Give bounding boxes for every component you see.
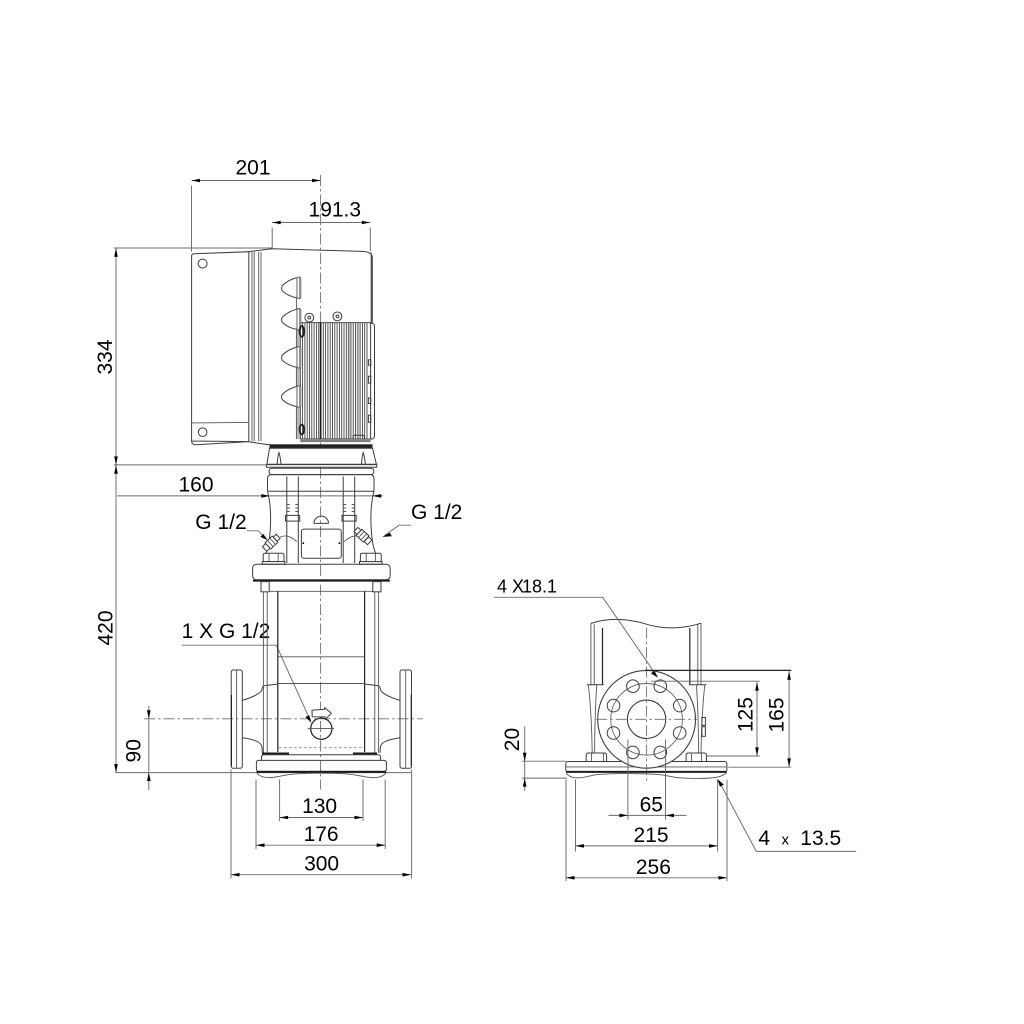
svg-text:334: 334: [94, 339, 117, 374]
svg-text:x: x: [782, 832, 790, 849]
svg-text:1 X G 1/2: 1 X G 1/2: [182, 620, 271, 643]
svg-text:300: 300: [304, 853, 339, 876]
svg-text:90: 90: [123, 739, 146, 762]
svg-text:4: 4: [758, 827, 770, 850]
svg-text:256: 256: [636, 856, 671, 879]
svg-text:20: 20: [501, 728, 524, 751]
svg-text:160: 160: [178, 474, 213, 497]
svg-text:420: 420: [95, 610, 118, 645]
svg-text:130: 130: [302, 795, 337, 818]
svg-text:13.5: 13.5: [800, 827, 841, 850]
svg-text:191.3: 191.3: [309, 199, 362, 222]
svg-text:125: 125: [734, 697, 757, 732]
svg-text:215: 215: [633, 824, 668, 847]
svg-text:165: 165: [766, 697, 789, 732]
svg-text:G 1/2: G 1/2: [411, 501, 462, 524]
svg-text:G 1/2: G 1/2: [195, 511, 246, 534]
svg-text:18.1: 18.1: [522, 577, 557, 597]
svg-text:176: 176: [304, 823, 339, 846]
svg-text:201: 201: [235, 157, 270, 180]
svg-text:4 X: 4 X: [497, 577, 524, 597]
svg-text:65: 65: [640, 793, 663, 816]
